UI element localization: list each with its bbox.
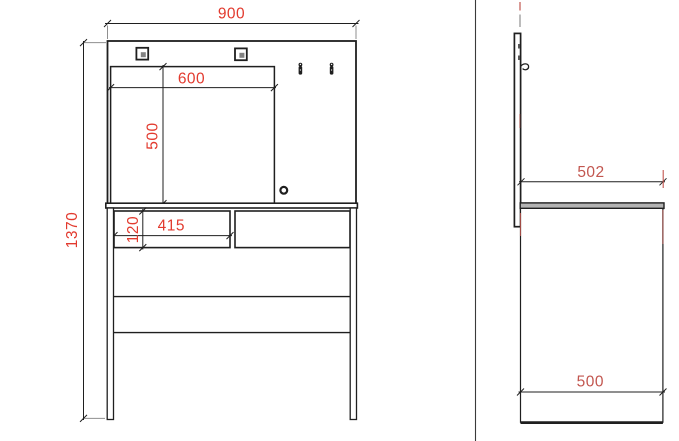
front-view: 900 1370 [64,6,360,422]
back-rail [114,297,351,333]
hook-icon [330,63,334,75]
desktop [106,203,358,208]
dim-overall-width: 900 [104,6,360,28]
side-desktop [520,203,664,209]
drawer-right [235,211,350,248]
dim-label-top-depth: 502 [577,164,604,181]
dim-label-drawer-width: 415 [158,218,185,235]
dim-top-depth: 502 [518,164,667,188]
leg-left [107,208,113,420]
leg-right [350,208,356,420]
dim-label-drawer-height: 120 [125,216,142,243]
mounting-square-icon [136,48,148,60]
drawing-canvas: 900 1370 [0,0,679,441]
knob-icon [280,187,287,194]
dim-label-mirror-height: 500 [144,122,161,149]
mounting-square-icon [235,48,247,60]
dim-label-base-depth: 500 [577,373,604,390]
side-hook-icon [521,64,529,70]
side-view: 502 500 [514,2,666,423]
dim-overall-height: 1370 [64,39,87,422]
dim-label-overall-width: 900 [218,6,245,23]
side-back-panel [514,33,520,226]
dim-label-mirror-width: 600 [178,71,205,88]
hook-icon [299,63,303,75]
dim-label-overall-height: 1370 [64,212,81,248]
